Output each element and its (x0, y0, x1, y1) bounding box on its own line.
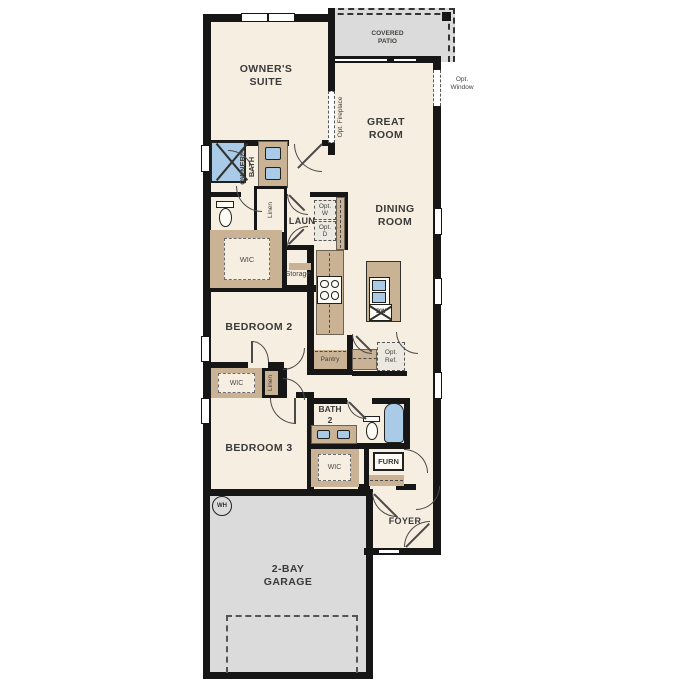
bath2-sink-2 (337, 430, 350, 439)
bedroom2-wic-inner: WIC (218, 373, 255, 393)
dishwasher-label: DW (370, 309, 392, 317)
opt-window-label: Opt. Window (444, 76, 480, 92)
garage-door-outline (226, 615, 358, 673)
stove (317, 276, 342, 304)
owners-toilet-tank (216, 201, 234, 208)
garage-label: 2-BAY GARAGE (218, 563, 358, 589)
floor-plan: COVERED PATIO 2-BAY GARAGE WH Opt. Windo… (0, 0, 687, 687)
kitchen-island: DW (366, 261, 401, 322)
window-suite-2 (268, 13, 295, 22)
wall-toilet-nook (203, 192, 241, 197)
opt-washer-label: Opt. W (319, 203, 331, 218)
wall-kitchen-row-bottom (352, 371, 407, 376)
patio-post (442, 12, 451, 21)
owners-wic-label: WIC (240, 255, 255, 264)
owners-suite-label: OWNER'S SUITE (216, 63, 316, 89)
bathtub (384, 403, 404, 443)
window-right-2 (434, 278, 442, 305)
linen-bath-label: Linen (262, 190, 280, 230)
pantry-dash (315, 351, 346, 352)
window-bath-left (201, 145, 210, 172)
opt-refrigerator-label: Opt. Ref. (385, 349, 397, 364)
water-heater-label: WH (217, 503, 227, 509)
window-bedroom2 (201, 336, 210, 362)
laundry-counter (336, 197, 345, 250)
bath2-vanity (311, 425, 357, 444)
bath2-label: BATH 2 (313, 404, 347, 425)
water-heater: WH (212, 496, 232, 516)
coat-shelf-dash (370, 480, 403, 481)
island-sink (369, 277, 390, 305)
opt-dryer: Opt. D (314, 221, 336, 241)
bath2-toilet-bowl (366, 422, 378, 440)
bedroom2-wic-label: WIC (230, 380, 244, 387)
bedroom2-label: BEDROOM 2 (211, 321, 307, 334)
furnace: FURN (373, 452, 404, 471)
wall-tub-right (404, 398, 410, 448)
burner-2 (331, 280, 340, 289)
dishwasher: DW (369, 304, 392, 321)
sliding-door (334, 58, 388, 63)
great-room-label: GREAT ROOM (336, 116, 436, 142)
window-right-3 (434, 372, 442, 399)
bedroom3-label: BEDROOM 3 (211, 442, 307, 455)
burner-4 (331, 291, 340, 300)
opt-washer: Opt. W (314, 200, 336, 220)
bath2-wic-inner: WIC (318, 454, 351, 481)
window-bedroom3 (201, 398, 210, 424)
dining-room-label: DINING ROOM (345, 203, 445, 229)
bath2-wic-label: WIC (328, 464, 342, 471)
owners-toilet-bowl (219, 208, 232, 227)
laundry-counter-dash (340, 200, 341, 248)
opt-dryer-label: Opt. D (319, 224, 331, 239)
wall-pantry-bottom (310, 369, 352, 375)
storage-shelf (289, 263, 311, 270)
bath2-sink-1 (317, 430, 330, 439)
sink-basin-1 (372, 280, 386, 291)
burner-3 (320, 291, 329, 300)
owners-wic-inner: WIC (224, 238, 270, 280)
storage-label: Storage (283, 271, 313, 280)
sink-basin-2 (372, 292, 386, 303)
window-suite-1 (241, 13, 268, 22)
furnace-label: FURN (378, 457, 399, 466)
bedroom3-door-leaf (294, 398, 296, 424)
opt-window-marker (433, 70, 441, 106)
covered-patio-label: COVERED PATIO (340, 30, 435, 46)
sliding-door-panel (393, 58, 417, 63)
wall-patio-left (328, 8, 335, 62)
entry-sidelight (378, 549, 400, 554)
pantry-label: Pantry (312, 356, 348, 364)
burner-1 (320, 280, 329, 289)
linen-hall-label: Linen (263, 363, 279, 403)
wall-foyer-bottom (364, 548, 441, 555)
